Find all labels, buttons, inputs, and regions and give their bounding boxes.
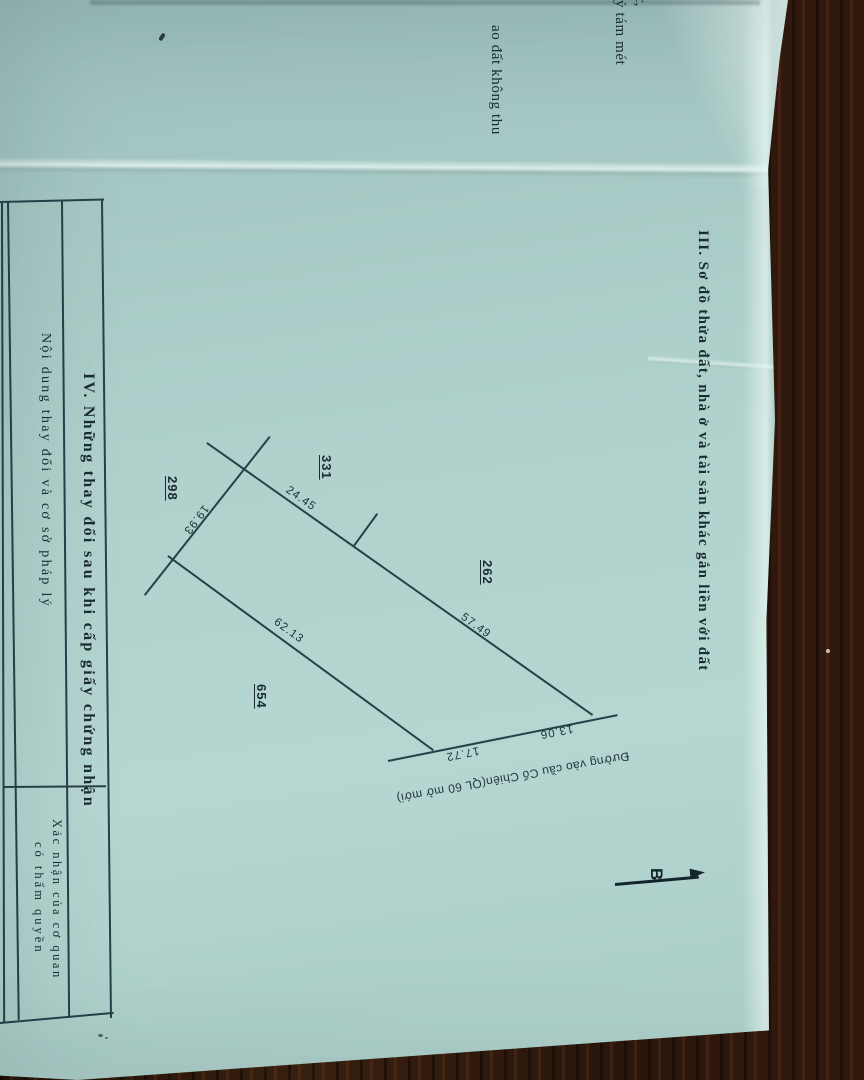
dimension-57-49: 57.49	[458, 611, 492, 641]
dimension-13-06: 13.06	[539, 722, 574, 740]
north-arrow-shaft	[615, 876, 699, 886]
table-row-separator-1	[61, 200, 70, 1018]
dust-on-wood	[826, 649, 830, 653]
parcel-number-331: 331	[319, 455, 334, 480]
text-fragment-tam-met: ỷ tám mét	[611, 0, 628, 65]
parcel-number-298: 298	[165, 476, 180, 501]
north-label: B	[646, 868, 666, 880]
parcel-number-654: 654	[254, 684, 269, 709]
parcel-number-262: 262	[480, 560, 495, 585]
table-border-right	[101, 199, 112, 1018]
dimension-62-13: 62.13	[271, 616, 305, 646]
column-header-content: Nội dung thay đổi và cơ sở pháp lý	[37, 333, 53, 608]
table-row-separator-3	[1, 202, 5, 1022]
road-line	[388, 714, 618, 762]
table-row-separator-2	[7, 201, 19, 1020]
table-border-top	[0, 198, 104, 202]
column-header-confirm-line2: có thẩm quyền	[31, 842, 46, 955]
ink-speck	[158, 33, 166, 42]
diagonal-crease	[648, 355, 793, 372]
boundary-line-main	[207, 442, 594, 715]
paper-speck	[98, 1034, 103, 1037]
text-fragment-ao-dat: ao đất không thu	[487, 25, 504, 135]
dimension-19-93: 19.93	[181, 502, 211, 536]
road-name-label: Đường vào cầu Cổ Chiên(QL 60 mở mới)	[395, 749, 630, 805]
boundary-line-cross	[144, 436, 270, 596]
paper-speck-2	[105, 1037, 108, 1039]
boundary-line-lower	[168, 555, 434, 751]
table-column-separator	[4, 785, 106, 787]
dimension-17-72: 17.72	[445, 744, 480, 762]
horizontal-fold-crease	[0, 157, 790, 179]
north-arrow-head-icon	[690, 867, 706, 878]
table-border-bottom	[0, 1012, 114, 1024]
text-fragment-comma: c,	[631, 0, 648, 6]
column-header-confirm-line1: Xác nhận của cơ quan	[49, 819, 64, 980]
division-tick	[352, 513, 377, 547]
top-edge-shadow	[90, 0, 760, 5]
photo-of-land-certificate: c, ỷ tám mét ao đất không thu III. Sơ đồ…	[0, 0, 864, 1080]
certificate-paper: c, ỷ tám mét ao đất không thu III. Sơ đồ…	[0, 0, 864, 1080]
section4-title: IV. Những thay đổi sau khi cấp giấy chứn…	[79, 373, 97, 808]
section3-heading: III. Sơ đồ thửa đất, nhà ở và tài sản kh…	[694, 230, 711, 672]
dimension-24-45: 24.45	[284, 484, 319, 513]
